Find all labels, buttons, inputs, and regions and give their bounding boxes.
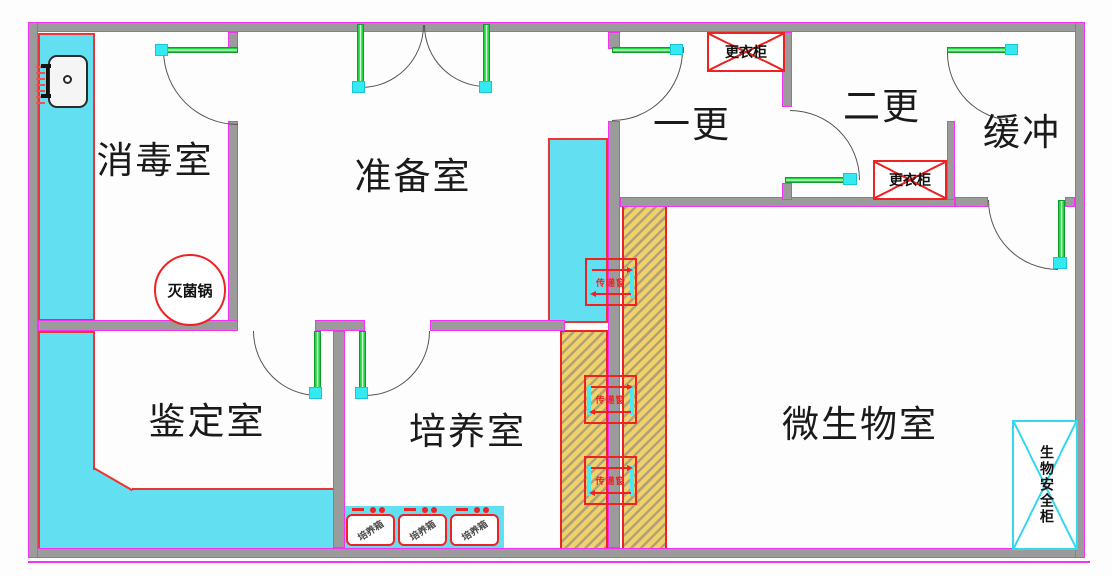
l-bench-edge-shelf-top [132,488,335,490]
door-leaf-change2-buffer [947,47,1013,53]
pass-window-label: 传递窗 [586,393,635,406]
wall-identification-culture [333,331,345,548]
l-bench-edge-top [38,331,95,333]
door-hinge-culture [355,387,368,399]
incubator-mark [456,508,468,511]
room-label-microbiology: 微生物室 [780,406,940,447]
pass-window-line-bottom [595,293,631,295]
incubator-mark [404,508,416,511]
sink-drain [63,75,72,84]
pass-window-arrow-right-icon [627,267,633,273]
door-hinge-buffer-micro [1053,257,1067,269]
wardrobe-2: 更衣柜 [873,160,947,200]
door-hinge-identification [309,387,322,399]
pass-window-2: 传递窗 [584,375,637,424]
incubator-dot [422,507,428,513]
wall-prep-culture [430,320,565,331]
biosafety-cabinet: 生物安全柜 [1012,420,1078,550]
pass-window-label: 传递窗 [586,474,635,487]
incubator-mark [352,508,364,511]
incubator-dot [379,507,385,513]
incubator-1: 培养箱 [346,514,395,546]
door-arc-buffer-micro [988,200,1058,270]
room-label-change2: 二更 [840,88,924,129]
room-label-change1: 一更 [652,106,732,147]
incubator-2: 培养箱 [398,514,447,546]
wardrobe-1: 更衣柜 [707,32,785,72]
pass-window-line-bottom [594,492,631,494]
wall-change2-buffer [947,121,955,200]
sterilizer-symbol: 灭菌锅 [154,254,226,326]
door-arc-culture [365,331,430,396]
pass-window-3: 传递窗 [584,456,637,505]
door-arc-disinfection [163,50,238,125]
wall-buffer-bottom-left [955,197,988,207]
sink-tap-top [41,64,51,68]
door-hinge-prep-left [352,81,365,93]
room-label-identification: 鉴定室 [132,403,282,444]
pass-window-line-bottom [594,411,631,413]
outer-wall-top [28,22,1085,32]
door-leaf-culture [359,331,366,393]
door-arc-prep-right [424,25,486,87]
duct-wall-left [560,330,608,551]
pass-window-line-top [591,386,628,388]
door-hinge-prep-right [479,81,492,93]
pass-window-arrow-right-icon [627,384,633,390]
wall-buffer-bottom-stub [1065,197,1075,207]
sterilizer-label: 灭菌锅 [167,280,212,301]
incubator-1-label: 培养箱 [355,516,387,543]
room-label-buffer: 缓冲 [982,114,1062,155]
door-hinge-change1-change2 [843,173,857,185]
l-bench-edge-right [93,331,95,470]
pass-window-line-top [591,467,628,469]
room-label-preparation: 准备室 [338,158,488,199]
incubator-dot [483,507,489,513]
door-leaf-identification [314,331,321,393]
wall-change1-change2-stub [782,183,792,200]
incubator-dot [431,507,437,513]
pass-window-line-top [592,269,628,271]
wardrobe-1-label: 更衣柜 [725,42,767,62]
incubator-dot [474,507,480,513]
incubator-2-label: 培养箱 [407,516,439,543]
wall-disinfection-identification [38,320,238,331]
room-label-culture: 培养室 [390,413,545,454]
incubator-3: 培养箱 [450,514,499,546]
door-arc-change2-buffer [947,53,1015,121]
door-leaf-buffer-micro [1058,200,1065,263]
pass-window-arrow-left-icon [589,409,595,415]
floor-plan: 灭菌锅 更衣柜 更衣柜 传递窗 传递窗 传递窗 [0,0,1112,577]
incubator-3-label: 培养箱 [459,516,491,543]
pass-window-1: 传递窗 [585,258,637,306]
door-hinge-disinfection [155,44,168,56]
door-leaf-prep-right [483,24,490,88]
door-arc-prep-left [361,25,424,88]
door-hinge-change1-entry [670,44,683,55]
door-leaf-disinfection [163,47,238,53]
outer-wall-bottom [28,548,1085,558]
l-bench-edge-left [38,331,40,548]
wall-door-pier [315,320,365,331]
door-hinge-change2-buffer [1005,44,1018,55]
pass-window-arrow-right-icon [627,465,633,471]
wardrobe-2-label: 更衣柜 [889,170,931,190]
sink-tap-bottom [41,94,51,98]
incubator-dot [370,507,376,513]
biosafety-cabinet-label: 生物安全柜 [1035,445,1055,525]
room-label-disinfection: 消毒室 [80,142,230,183]
boundary-line-bottom [28,561,1090,563]
pass-window-label: 传递窗 [587,276,635,289]
pass-window-arrow-left-icon [590,291,596,297]
pass-window-arrow-left-icon [589,490,595,496]
door-leaf-prep-left [357,24,364,88]
